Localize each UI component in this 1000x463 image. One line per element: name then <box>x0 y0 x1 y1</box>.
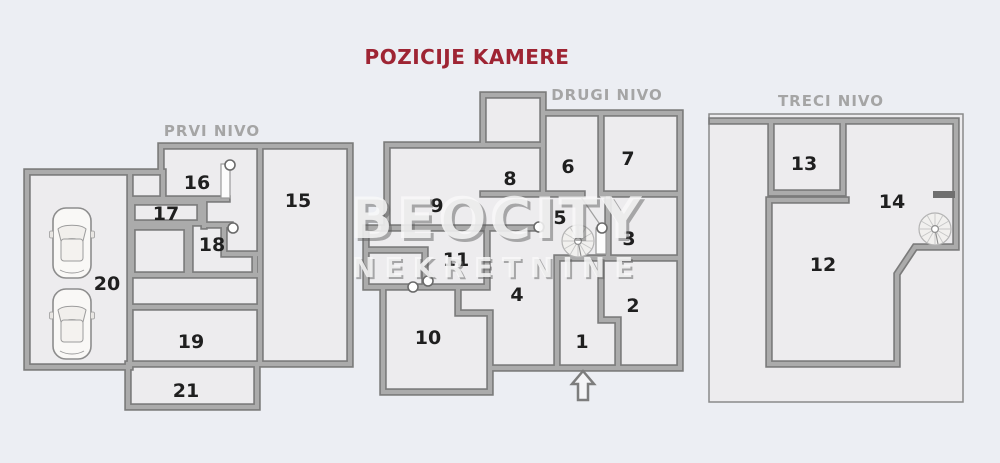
room-label-12: 12 <box>810 254 836 276</box>
level-title-drugi: DRUGI NIVO <box>551 86 663 104</box>
room-label-21: 21 <box>173 380 199 402</box>
floor-plan-canvas: PRVI NIVO 15 16 17 18 19 20 21 DRUGI NIV… <box>0 0 1000 463</box>
watermark-line2: NEKRETNINE <box>352 251 642 284</box>
room-label-4: 4 <box>510 284 523 306</box>
room-label-15: 15 <box>285 190 311 212</box>
camera-marker-icon <box>225 160 235 170</box>
spiral-staircase-icon <box>919 213 951 245</box>
page-title: POZICIJE KAMERE <box>365 45 570 69</box>
room-label-1: 1 <box>575 331 588 353</box>
room-label-7: 7 <box>621 148 634 170</box>
watermark-line1: BEOCITY <box>349 186 644 252</box>
floor-plan-prvi-nivo: PRVI NIVO 15 16 17 18 19 20 21 <box>27 122 350 407</box>
watermark: BEOCITY BEOCITY NEKRETNINE NEKRETNINE <box>349 186 647 286</box>
room-label-20: 20 <box>94 273 120 295</box>
camera-marker-icon <box>228 223 238 233</box>
room-label-13: 13 <box>791 153 817 175</box>
door-marker <box>933 191 955 198</box>
room-label-14: 14 <box>879 191 905 213</box>
room-label-17: 17 <box>153 203 179 225</box>
level-title-treci: TRECI NIVO <box>778 92 884 110</box>
room-label-16: 16 <box>184 172 210 194</box>
room-label-18: 18 <box>199 234 225 256</box>
car-icon <box>50 208 95 278</box>
room-label-6: 6 <box>561 156 574 178</box>
room-label-2: 2 <box>626 295 639 317</box>
car-icon <box>50 289 95 359</box>
room-label-19: 19 <box>178 331 204 353</box>
floor-plan-treci-nivo: TRECI NIVO 12 13 14 <box>709 92 963 402</box>
entrance-arrow-icon <box>572 371 594 400</box>
level-title-prvi: PRVI NIVO <box>164 122 260 140</box>
room-label-10: 10 <box>415 327 441 349</box>
floor-plans-svg: PRVI NIVO 15 16 17 18 19 20 21 DRUGI NIV… <box>0 0 1000 463</box>
